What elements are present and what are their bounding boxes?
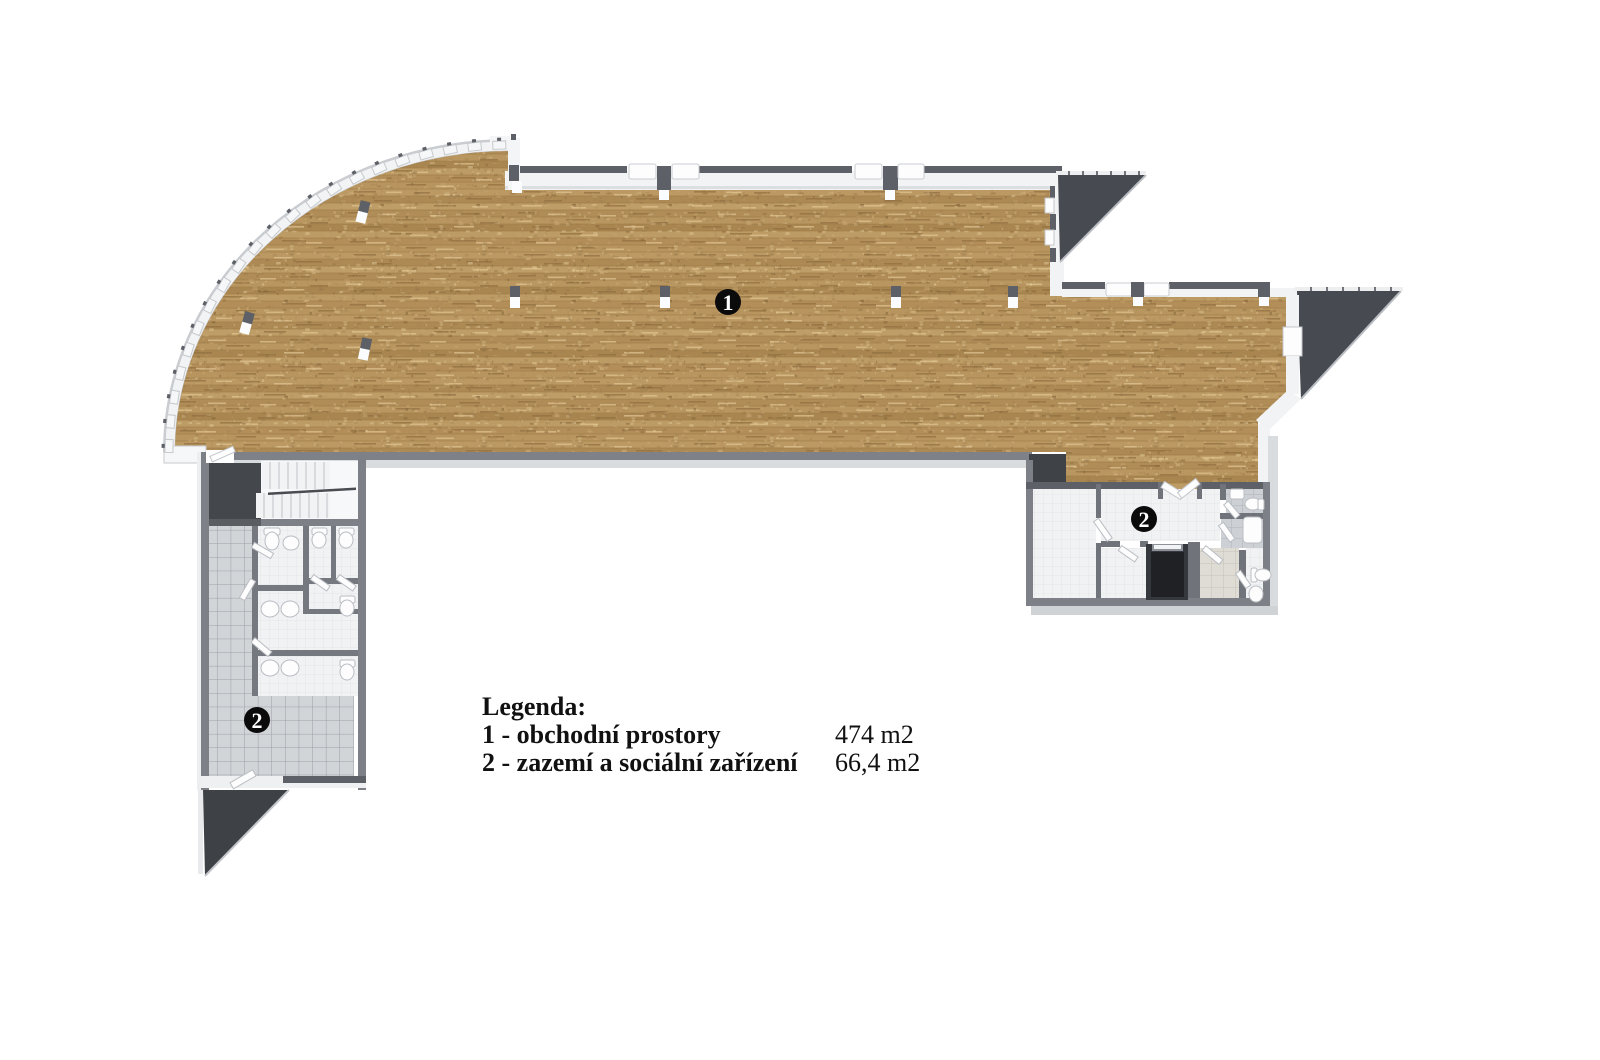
- svg-text:1: 1: [723, 290, 734, 315]
- svg-text:2: 2: [252, 708, 263, 733]
- svg-text:2: 2: [1139, 507, 1150, 532]
